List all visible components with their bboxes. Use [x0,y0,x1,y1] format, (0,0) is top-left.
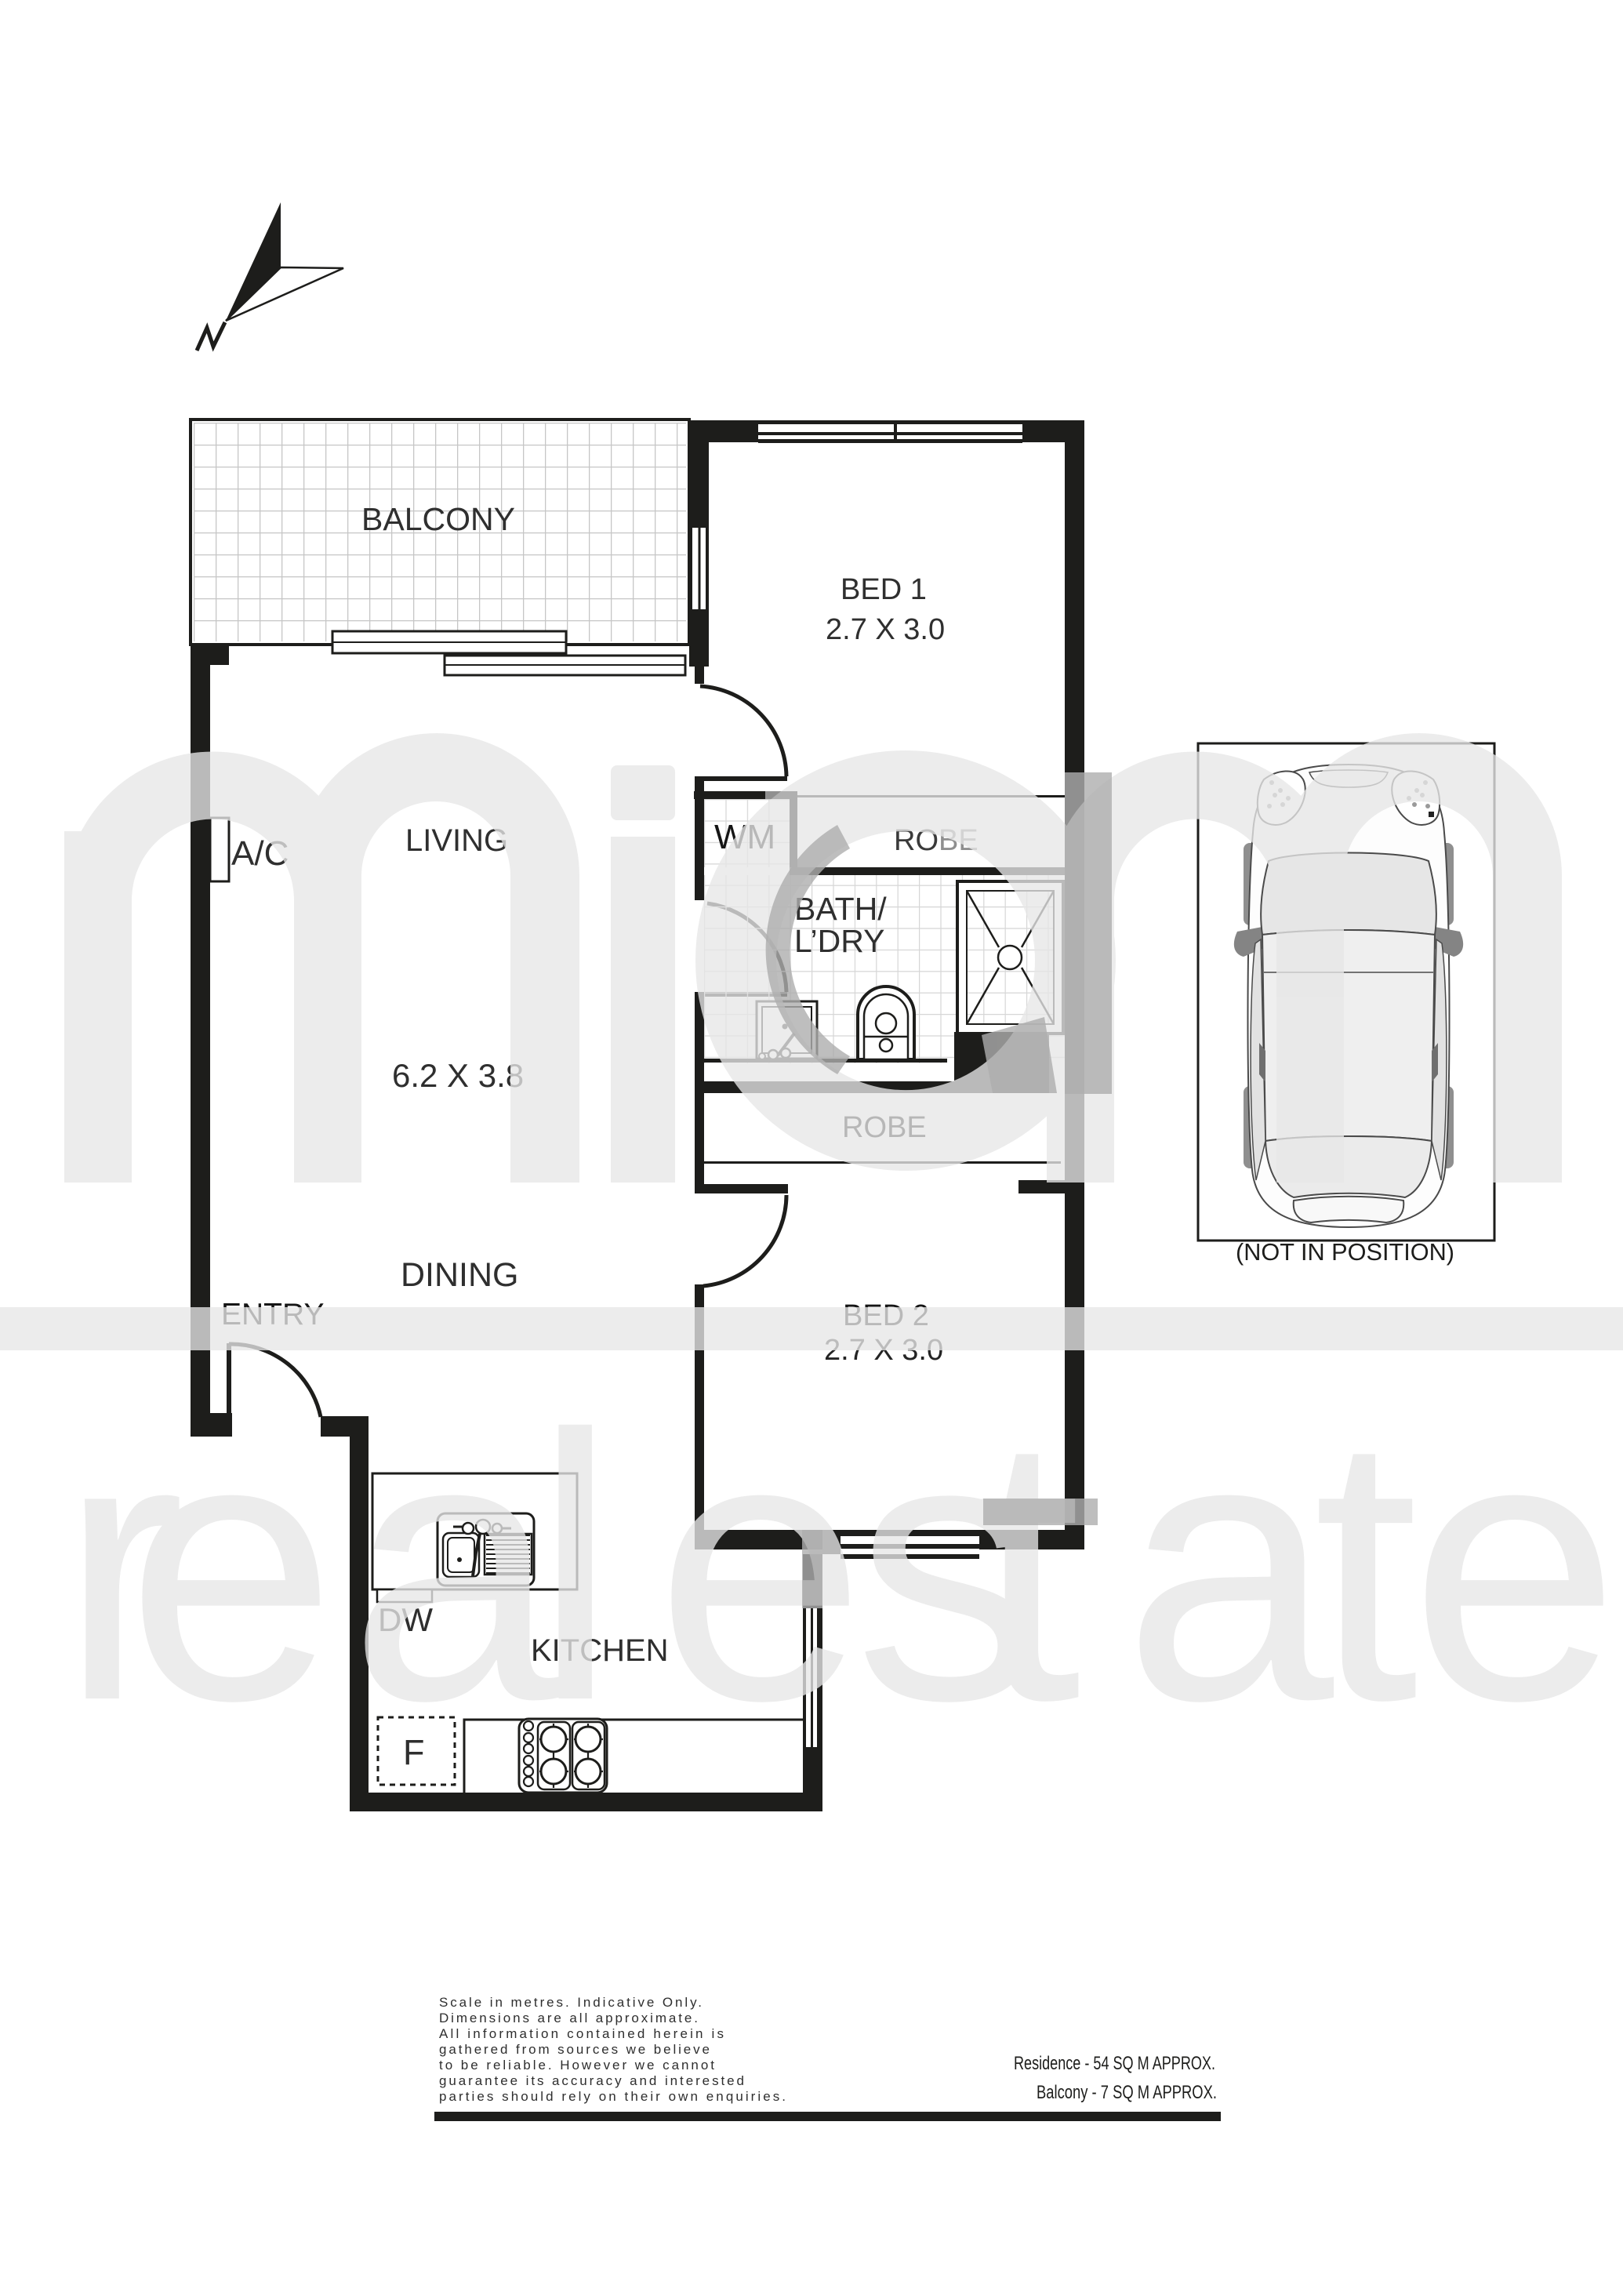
svg-text:e: e [126,1357,336,1779]
svg-text:t: t [976,1357,1083,1779]
svg-text:All information contained here: All information contained herein is [439,2026,724,2041]
svg-text:parties should rely on their o: parties should rely on their own enquiri… [439,2089,786,2104]
svg-text:BED 1: BED 1 [841,573,927,606]
svg-text:a: a [349,1357,561,1779]
svg-text:BATH/: BATH/ [794,891,887,927]
svg-text:Residence - 54 SQ M APPROX.: Residence - 54 SQ M APPROX. [1014,2053,1215,2074]
svg-text:BALCONY: BALCONY [361,501,515,537]
svg-text:LIVING: LIVING [405,823,508,858]
svg-text:L’DRY: L’DRY [794,923,884,959]
svg-text:guarantee its accuracy and int: guarantee its accuracy and interested [439,2073,744,2088]
svg-text:to be reliable. However we can: to be reliable. However we cannot [439,2058,714,2073]
svg-text:Dimensions are all approximate: Dimensions are all approximate. [439,2011,698,2025]
svg-text:l: l [533,1357,617,1779]
svg-text:Balcony - 7 SQ M APPROX.: Balcony - 7 SQ M APPROX. [1037,2082,1217,2103]
svg-text:Scale in metres. Indicative On: Scale in metres. Indicative Only. [439,1995,702,2010]
svg-text:t: t [1313,1357,1420,1779]
svg-text:(NOT IN POSITION): (NOT IN POSITION) [1236,1238,1454,1266]
svg-text:2.7 X 3.0: 2.7 X 3.0 [826,613,945,646]
svg-text:gathered from sources we belie: gathered from sources we believe [439,2042,710,2057]
svg-text:e: e [655,1357,866,1779]
svg-text:6.2 X 3.8: 6.2 X 3.8 [392,1057,524,1094]
svg-text:DINING: DINING [401,1256,519,1294]
svg-text:a: a [1124,1357,1336,1779]
svg-text:e: e [1410,1357,1620,1779]
